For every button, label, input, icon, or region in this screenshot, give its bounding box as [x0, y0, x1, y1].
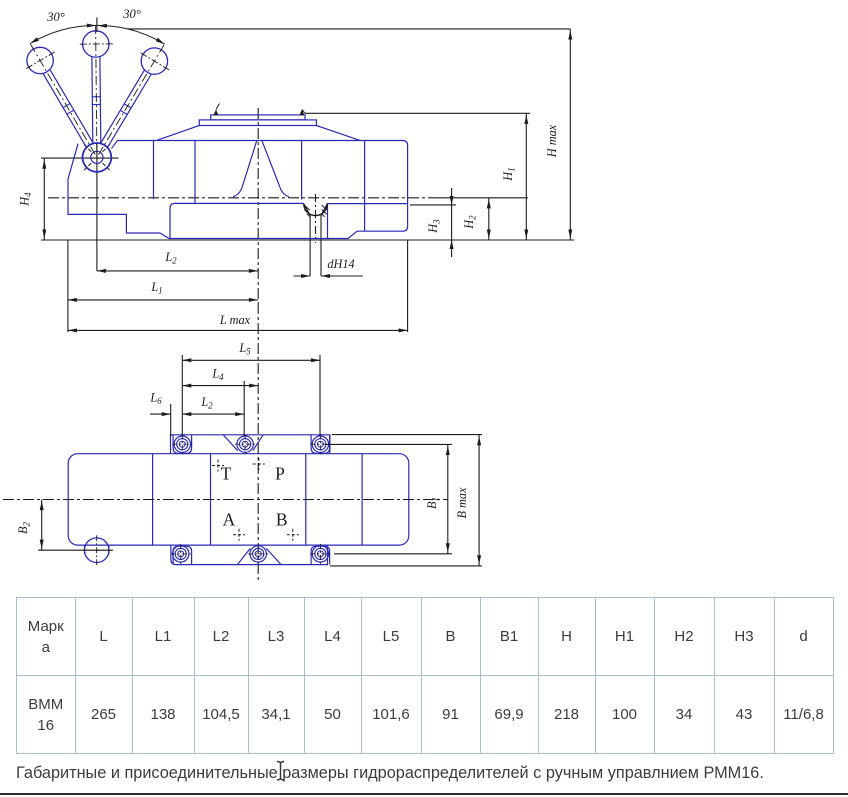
svg-text:H3: H3 — [426, 219, 442, 234]
svg-text:B1: B1 — [425, 497, 441, 509]
svg-text:T: T — [221, 464, 232, 484]
svg-text:30°: 30° — [122, 7, 141, 21]
svg-text:B: B — [276, 510, 288, 530]
svg-text:B max: B max — [455, 487, 469, 519]
svg-text:B2: B2 — [16, 521, 32, 534]
svg-text:L5: L5 — [238, 341, 251, 357]
svg-text:H1: H1 — [501, 167, 517, 181]
svg-text:dH14: dH14 — [327, 257, 354, 271]
svg-text:L2: L2 — [164, 250, 177, 266]
svg-text:P: P — [275, 464, 285, 484]
svg-text:L1: L1 — [150, 280, 162, 296]
svg-text:L4: L4 — [211, 367, 224, 383]
svg-text:H4: H4 — [18, 192, 34, 207]
svg-text:30°: 30° — [46, 10, 65, 24]
svg-text:L max: L max — [219, 313, 251, 327]
svg-text:A: A — [223, 510, 236, 530]
svg-text:H max: H max — [545, 124, 559, 158]
svg-text:L2: L2 — [200, 395, 213, 411]
svg-text:H2: H2 — [462, 215, 478, 230]
svg-text:L6: L6 — [149, 391, 162, 407]
